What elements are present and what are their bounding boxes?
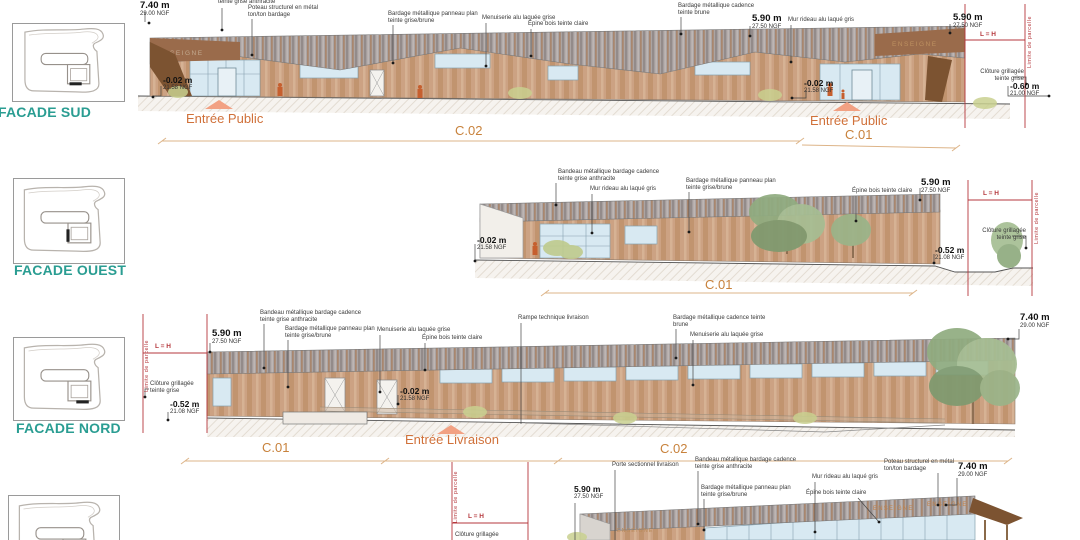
- callout-poteau-sud: Poteau structurel en métal ton/ton barda…: [248, 5, 333, 19]
- callout-panneau-sud: Bardage métallique panneau plan teinte g…: [388, 11, 488, 25]
- limite-parcelle-ouest: Limite de parcelle: [1034, 182, 1040, 244]
- level-value: 5.90 m: [752, 14, 782, 24]
- level-052-nord: -0.52 m 21.08 NGF: [170, 400, 199, 416]
- level-060-sud: -0.60 m 21.00 NGF: [1010, 82, 1039, 98]
- callout-cloture-est: Clôture grillagée: [455, 532, 499, 539]
- facade-sud-drawing: ENSEIGNE ENSEIGNE: [130, 12, 1015, 124]
- callout-cadence-brune-sud: Bardage métallique cadence teinte brune: [678, 3, 760, 17]
- level-value: 5.90 m: [212, 329, 242, 339]
- callout-epine-nord: Épine bois teinte claire: [422, 335, 482, 342]
- level-ngf: 21.00 NGF: [1010, 91, 1039, 98]
- callout-panneau-ouest: Bardage métallique panneau plan teinte g…: [686, 178, 786, 192]
- level-590-sud-mid: 5.90 m 27.50 NGF: [752, 14, 782, 31]
- level-002-sud-left: -0.02 m 21.58 NGF: [163, 76, 192, 92]
- keyplan-ouest: [13, 178, 125, 264]
- level-590-sud-right: 5.90 m 27.50 NGF: [953, 13, 983, 30]
- level-ngf: 27.50 NGF: [921, 188, 951, 195]
- level-002-nord: -0.02 m 21.58 NGF: [400, 387, 429, 403]
- enseigne-est-left: ENSEIGNE: [617, 528, 653, 534]
- level-ngf: 21.58 NGF: [804, 88, 833, 95]
- dim-c01-nord: C.01: [262, 440, 289, 455]
- callout-cloture-nord: Clôture grillagée teinte grise: [150, 381, 206, 395]
- keyplan-nord-sketch: [14, 338, 122, 418]
- lh-label-est: L = H: [468, 513, 484, 520]
- level-value: 5.90 m: [574, 485, 603, 494]
- level-value: -0.52 m: [170, 400, 199, 409]
- level-ngf: 27.50 NGF: [574, 494, 603, 501]
- level-ngf: 29.00 NGF: [958, 472, 988, 479]
- level-value: -0.02 m: [400, 387, 429, 396]
- level-ngf: 29.00 NGF: [1020, 323, 1050, 330]
- level-740-sud: 7.40 m 29.00 NGF: [140, 1, 170, 18]
- keyplan-sud-sketch: [13, 24, 122, 99]
- callout-bandeau-nord: Bandeau métallique bardage cadence teint…: [260, 310, 372, 324]
- callout-epine-sud: Épine bois teinte claire: [528, 21, 588, 28]
- level-002-sud-right: -0.02 m 21.58 NGF: [804, 79, 833, 95]
- keyplan-sud: [12, 23, 125, 102]
- entree-public-left: Entrée Public: [186, 111, 263, 126]
- level-value: 7.40 m: [1020, 313, 1050, 323]
- level-740-est: 7.40 m 29.00 NGF: [958, 462, 988, 479]
- keyplan-est: [8, 495, 120, 540]
- level-ngf: 27.50 NGF: [212, 339, 242, 346]
- facade-ouest-drawing: [465, 188, 1040, 293]
- callout-epine-ouest: Épine bois teinte claire: [852, 188, 912, 195]
- keyplan-est-sketch: [9, 496, 117, 540]
- enseigne-est-right1: ENSEIGNE: [873, 506, 914, 512]
- elevation-sheet: ENSEIGNE ENSEIGNE: [0, 0, 1080, 540]
- facade-nord-title: FACADE NORD: [16, 420, 121, 436]
- enseigne-est-right2: ENSEIGNE: [927, 502, 968, 508]
- level-ngf: 21.58 NGF: [477, 245, 506, 252]
- callout-mur-rideau-sud: Mur rideau alu laqué gris: [788, 17, 854, 24]
- level-002-ouest: -0.02 m 21.58 NGF: [477, 236, 506, 252]
- entree-livraison: Entrée Livraison: [405, 432, 499, 447]
- level-value: 5.90 m: [921, 178, 951, 188]
- level-590-nord: 5.90 m 27.50 NGF: [212, 329, 242, 346]
- callout-epine-est: Épine bois teinte claire: [806, 490, 866, 497]
- lh-label-sud: L = H: [980, 31, 996, 38]
- callout-mur-rideau-ouest: Mur rideau alu laqué gris: [590, 186, 656, 193]
- level-ngf: 27.50 NGF: [953, 23, 983, 30]
- callout-menuiserie-nord-right: Menuiserie alu laquée grise: [690, 332, 763, 339]
- dim-c02-nord: C.02: [660, 441, 687, 456]
- level-ngf: 21.08 NGF: [170, 409, 199, 416]
- enseigne-sud-right: ENSEIGNE: [892, 41, 938, 48]
- callout-mur-rideau-est: Mur rideau alu laqué gris: [812, 474, 878, 481]
- dim-c01-sud: C.01: [845, 127, 872, 142]
- dim-c02-sud: C.02: [455, 123, 482, 138]
- callout-bandeau-est: Bandeau métallique bardage cadence teint…: [695, 457, 807, 471]
- level-value: 5.90 m: [953, 13, 983, 23]
- keyplan-ouest-sketch: [14, 179, 122, 261]
- callout-cloture-ouest: Clôture grillagée teinte grise: [968, 228, 1026, 242]
- limite-parcelle-est: Limite de parcelle: [453, 465, 459, 523]
- callout-porte-est: Porte sectionnel livraison: [612, 462, 679, 469]
- level-ngf: 21.58 NGF: [400, 396, 429, 403]
- keyplan-nord: [13, 337, 125, 421]
- lh-label-ouest: L = H: [983, 190, 999, 197]
- callout-menuiserie-nord-left: Menuiserie alu laquée grise: [377, 327, 450, 334]
- callout-panneau-nord: Bardage métallique panneau plan teinte g…: [285, 326, 385, 340]
- facade-sud-title: FACADE SUD: [0, 104, 91, 120]
- level-ngf: 29.00 NGF: [140, 11, 170, 18]
- dim-c01-ouest: C.01: [705, 277, 732, 292]
- level-value: -0.02 m: [477, 236, 506, 245]
- level-value: 7.40 m: [958, 462, 988, 472]
- level-value: -0.02 m: [163, 76, 192, 85]
- level-052-ouest: -0.52 m 21.08 NGF: [935, 246, 964, 262]
- lh-label-nord: L = H: [155, 343, 171, 350]
- level-value: -0.02 m: [804, 79, 833, 88]
- callout-rampe-nord: Rampe technique livraison: [518, 315, 589, 322]
- callout-bandeau-ouest: Bandeau métallique bardage cadence teint…: [558, 169, 666, 183]
- limite-parcelle-sud: Limite de parcelle: [1027, 6, 1033, 68]
- level-value: 7.40 m: [140, 1, 170, 11]
- facade-ouest-title: FACADE OUEST: [14, 262, 126, 278]
- level-value: -0.60 m: [1010, 82, 1039, 91]
- level-590-ouest: 5.90 m 27.50 NGF: [921, 178, 951, 195]
- level-590-est: 5.90 m 27.50 NGF: [574, 485, 603, 501]
- level-value: -0.52 m: [935, 246, 964, 255]
- level-ngf: 21.08 NGF: [935, 255, 964, 262]
- level-ngf: 27.50 NGF: [752, 24, 782, 31]
- level-ngf: 21.58 NGF: [163, 85, 192, 92]
- callout-cadence-brune-nord: Bardage métallique cadence teinte brune: [673, 315, 773, 329]
- facade-est-drawing: ENSEIGNE ENSEIGNE ENSEIGNE: [555, 492, 1040, 540]
- level-740-nord: 7.40 m 29.00 NGF: [1020, 313, 1050, 330]
- entree-public-right: Entrée Public: [810, 113, 887, 128]
- callout-panneau-est: Bardage métallique panneau plan teinte g…: [701, 485, 801, 499]
